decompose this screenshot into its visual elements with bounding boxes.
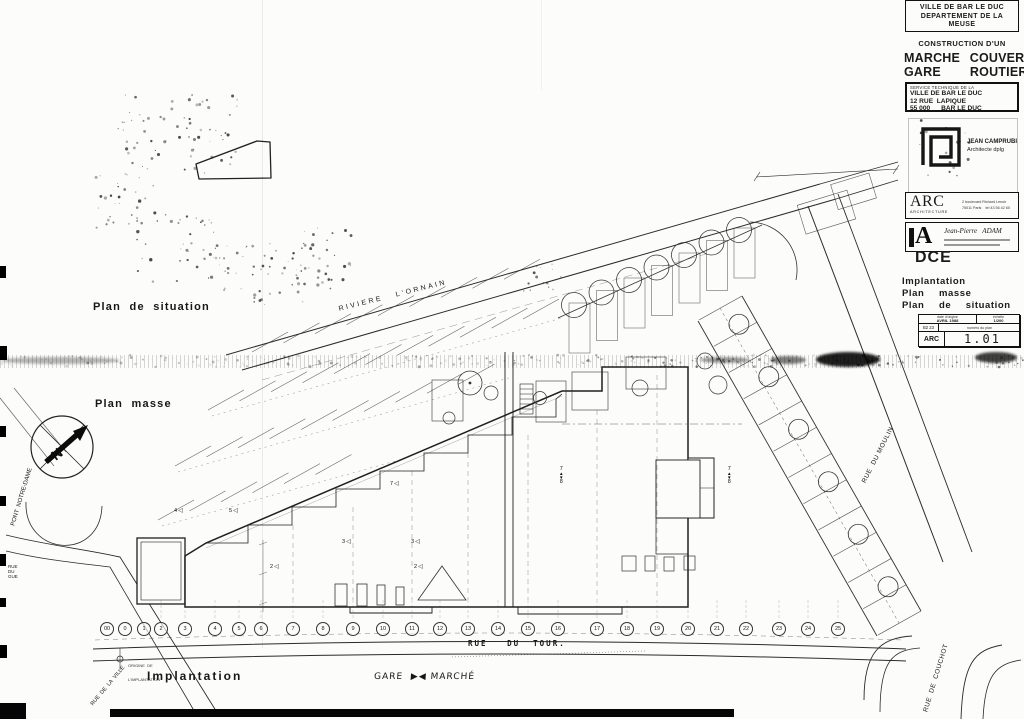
situation-plan-parcel (196, 141, 271, 179)
client-box: VILLE DE BAR LE DUC DEPARTEMENT DE LA ME… (905, 0, 1019, 32)
architect-title: Architecte dplg (967, 147, 1004, 153)
market-building (137, 352, 742, 614)
arc-agency-name: ARC (910, 193, 944, 211)
scanned-architectural-sheet: N Plan de situation Plan masse Implantat… (0, 0, 1024, 719)
client-line1: VILLE DE BAR LE DUC (906, 4, 1018, 13)
construction-label: CONSTRUCTION D'UN (900, 39, 1024, 48)
bus-bays-strip (698, 296, 921, 636)
adam-address-line (944, 244, 1000, 246)
project-title-line2: GARE ROUTIERE (904, 65, 1024, 79)
adam-address-line (944, 239, 1010, 241)
content-title-plan-masse: Plan masse (902, 288, 972, 299)
site-plan-drawing: N (0, 0, 1024, 719)
arc-agency-addr2: 75011 Paris tel 43 56 42 60 (962, 206, 1010, 210)
adam-logo: A (909, 226, 939, 249)
camprubi-logo (917, 123, 965, 171)
adam-logo-letter: A (915, 223, 932, 250)
client-line2: DEPARTEMENT DE LA (906, 13, 1018, 22)
adam-logo-bar (909, 228, 914, 247)
adam-agency-name: Jean-Pierre ADAM (944, 227, 1002, 235)
service-line4: 55 000 BAR LE DUC (910, 105, 1014, 113)
phase-label: DCE (915, 249, 952, 267)
plan-number: 1.01 (945, 332, 1021, 348)
info-agency: ARC (919, 332, 945, 348)
project-title-line1: MARCHE COUVERT (904, 51, 1024, 65)
scan-speckles (0, 94, 1024, 368)
title-block: VILLE DE BAR LE DUC DEPARTEMENT DE LA ME… (900, 0, 1024, 719)
content-title-plan-situation: Plan de situation (902, 300, 1011, 311)
arc-agency-box: ARC ARCHITECTURE 2 boulevard Richard Len… (905, 192, 1019, 219)
service-line2: VILLE DE BAR LE DUC (910, 90, 1014, 98)
info-scale-cell: échelle 1/200 (977, 315, 1021, 324)
north-building-row (558, 218, 797, 354)
client-line3: MEUSE (906, 21, 1018, 30)
compass-rose: N (31, 416, 93, 478)
info-code: B2 23 (919, 324, 939, 332)
architect-name: JEAN CAMPRUBI (967, 139, 1017, 145)
info-number-label: numéro du plan (939, 324, 1021, 332)
service-line3: 12 RUE LAPIQUE (910, 98, 1014, 106)
info-date-cell: date d'origine AVRIL 1988 (919, 315, 977, 324)
adam-agency-box: A Jean-Pierre ADAM (905, 222, 1019, 252)
arc-agency-addr1: 2 boulevard Richard Lenoir (962, 200, 1006, 204)
service-box: SERVICE TECHNIQUE DE LA VILLE DE BAR LE … (905, 82, 1019, 112)
content-title-implantation: Implantation (902, 276, 966, 287)
arc-agency-subtitle: ARCHITECTURE (910, 210, 948, 214)
info-table: date d'origine AVRIL 1988 échelle 1/200 … (918, 314, 1020, 347)
